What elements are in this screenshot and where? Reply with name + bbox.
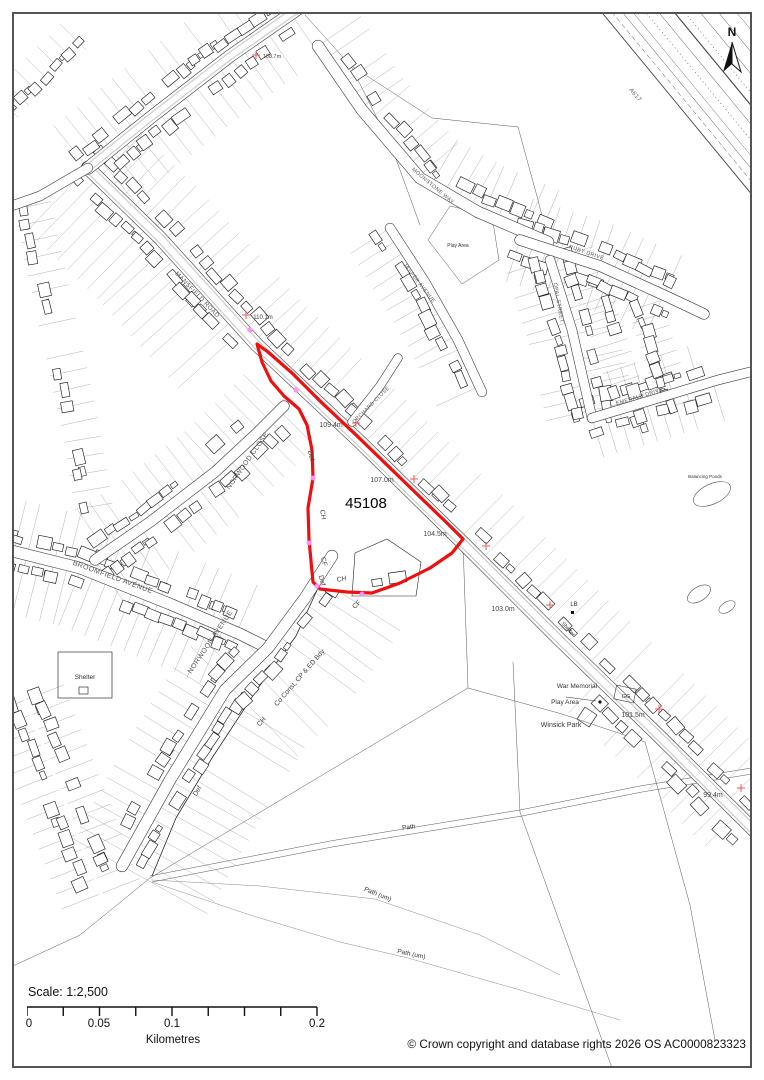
feature-label: Shelter: [75, 674, 96, 681]
feature-label: Winsick Park: [541, 722, 582, 729]
feature-label: War Memorial: [557, 683, 598, 690]
scale-tick-005: 0.05: [88, 1018, 110, 1030]
feature-label: GG: [622, 694, 631, 700]
map-layers: MANSFIELD ROADORCHARD CLOSENORWOOD CLOSE…: [0, 0, 764, 1068]
street-label: A617: [627, 87, 642, 103]
map-canvas: MANSFIELD ROADORCHARD CLOSENORWOOD CLOSE…: [0, 0, 764, 1080]
boundary-label: Def: [306, 450, 315, 462]
feature-label: Balancing Ponds: [688, 474, 723, 479]
elevation-label: 109.4m: [319, 422, 343, 429]
boundary-marker-dot: [294, 388, 298, 392]
roads-layer: [0, 6, 764, 866]
north-arrow-icon: [714, 38, 750, 76]
spot-height-cross: [737, 784, 745, 792]
elevation-label: 99.4m: [703, 792, 723, 799]
spot-height-cross: [410, 475, 418, 483]
boundary-marker-dot: [248, 328, 252, 332]
copyright-notice: © Crown copyright and database rights 20…: [407, 1037, 746, 1051]
scale-bar: 0 0.05 0.1 0.2 Kilometres: [27, 1005, 319, 1051]
scale-tick-01: 0.1: [164, 1018, 180, 1030]
feature-label: LB: [570, 602, 577, 608]
boundary-marker-dot: [311, 476, 315, 480]
elevation-label: 108.7m: [263, 54, 282, 60]
elevation-label: 110.1m: [253, 315, 273, 321]
scale-text: Scale: 1:2,500: [28, 985, 108, 999]
feature-label: Play Area: [447, 243, 469, 249]
boundary-marker-dot: [360, 592, 364, 596]
os-map-page: MANSFIELD ROADORCHARD CLOSENORWOOD CLOSE…: [0, 0, 764, 1080]
feature-label: Play Area: [551, 699, 579, 706]
street-label: MOONSTONE WAY: [410, 167, 455, 206]
scale-unit-label: Kilometres: [146, 1034, 200, 1046]
elevation-label: 107.0m: [370, 477, 394, 484]
scale-bar-ruler: [27, 1006, 319, 1018]
boundary-label: Def: [192, 785, 204, 798]
site-ref-label: 45108: [345, 495, 387, 512]
north-arrow: N: [714, 26, 750, 81]
elevation-label: 104.5m: [423, 531, 447, 538]
spot-height-cross: [482, 542, 490, 550]
boundary-marker-dot: [307, 541, 311, 545]
north-label: N: [714, 26, 750, 38]
scale-tick-0: 0: [26, 1018, 32, 1030]
feature-label: Path: [402, 823, 417, 832]
boundary-label: CF: [351, 599, 362, 610]
elevation-label: 101.5m: [621, 712, 645, 719]
boundary-marker-dot: [315, 584, 319, 588]
scale-tick-02: 0.2: [309, 1018, 325, 1030]
feature-label: Path (um): [363, 886, 392, 903]
boundary-label: CH: [256, 716, 268, 728]
elevation-label: 103.0m: [491, 606, 515, 613]
